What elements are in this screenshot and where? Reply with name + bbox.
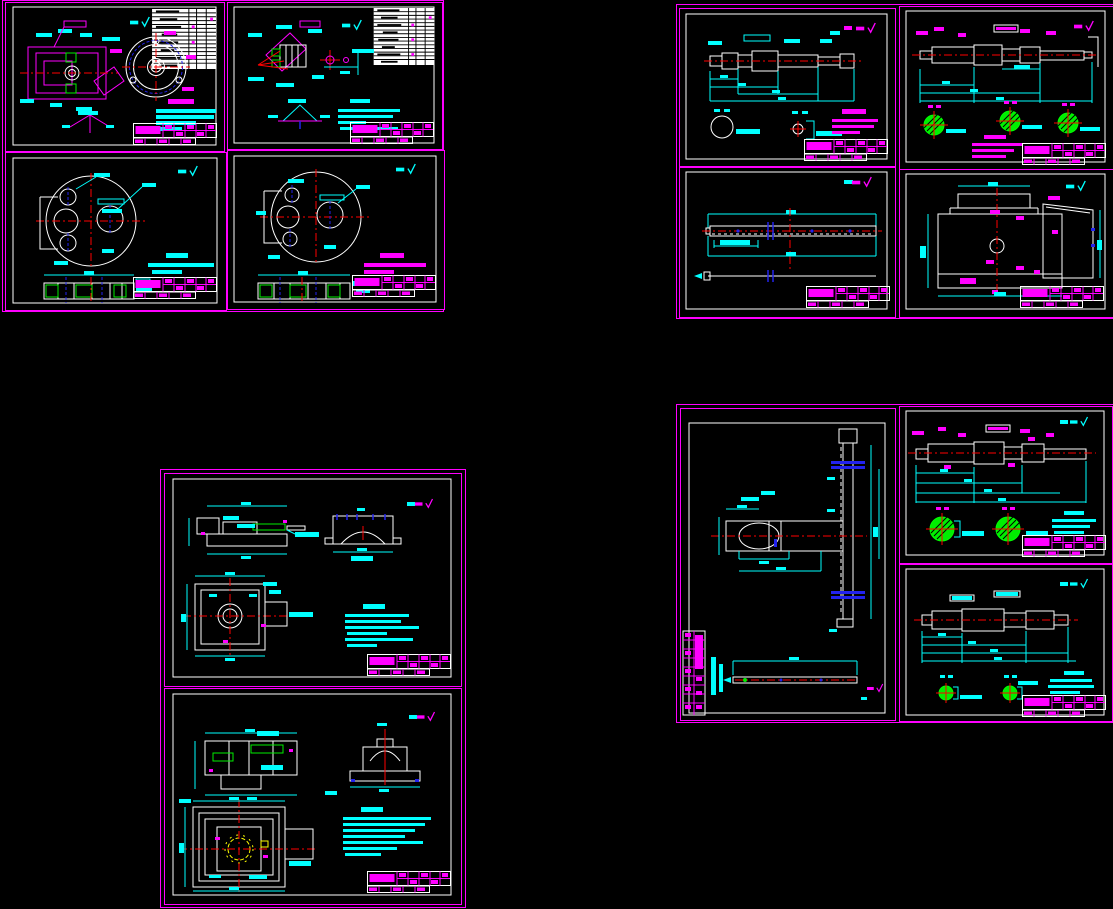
surface-finish-mark [178, 166, 197, 175]
sheet-D3[interactable] [899, 564, 1113, 722]
surface-finish-mark [407, 499, 433, 507]
cad-model-space [0, 0, 1113, 909]
sheet-B3[interactable] [679, 167, 896, 318]
surface-finish-mark [844, 23, 875, 32]
surface-finish-mark [130, 17, 149, 26]
housing-front-view [920, 182, 1062, 296]
technical-notes [364, 253, 426, 274]
sheet-A1[interactable] [5, 2, 225, 152]
housing-section-view [195, 729, 297, 800]
sheet-C2[interactable] [164, 688, 462, 905]
sheet-A4[interactable] [227, 150, 445, 310]
sheet-B2[interactable] [899, 6, 1113, 171]
sheet-A3[interactable] [5, 152, 227, 311]
surface-finish-mark [409, 712, 435, 720]
arm-view [711, 491, 867, 571]
sheet-B1[interactable] [679, 8, 896, 167]
sheet-B4[interactable] [899, 169, 1113, 318]
title-block [807, 287, 890, 308]
cluster-bottom-right [676, 404, 1113, 723]
drilled-plate-view [36, 173, 156, 269]
shaft-main-view [914, 591, 1078, 663]
title-block [134, 124, 217, 145]
shaft-main-view [908, 437, 1096, 503]
technical-notes [972, 135, 1022, 158]
housing-front-view [325, 723, 420, 795]
technical-notes [1048, 671, 1094, 694]
technical-notes [148, 253, 214, 274]
surface-finish-mark [1060, 579, 1088, 587]
green-section-circles [920, 101, 1100, 139]
title-block [368, 655, 451, 676]
shaft-main-view [912, 37, 1098, 103]
parts-list-table [374, 8, 435, 65]
surface-finish-mark [1074, 21, 1093, 30]
bracket-top-view [325, 508, 401, 561]
vertical-rack-view [827, 429, 879, 632]
upper-dimension-labels [912, 425, 1054, 437]
bottom-detail-view [62, 111, 114, 133]
technical-notes [345, 604, 419, 647]
drilled-plate-view [256, 169, 370, 265]
surface-finish-mark [1066, 181, 1085, 190]
rack-bar-top-view [702, 208, 882, 270]
title-block [134, 278, 217, 299]
rack-bar-side-view [694, 270, 876, 282]
sheet-D2[interactable] [899, 406, 1113, 564]
gear-plan-view [179, 797, 315, 893]
sheet-A2[interactable] [227, 2, 443, 150]
housing-side-view [1043, 196, 1102, 278]
title-block [353, 276, 436, 297]
title-block [805, 140, 888, 161]
bracket-plan-view [181, 572, 313, 661]
angled-clamp-view [248, 21, 324, 87]
surface-finish-mark [396, 164, 415, 173]
sheet-C1[interactable] [164, 473, 462, 687]
rack-side-strip-view [723, 657, 883, 700]
upper-dimension-labels [916, 25, 1056, 37]
cone-detail-view [268, 99, 330, 129]
section-detail-hatched [711, 109, 760, 138]
title-block [351, 123, 434, 144]
assembly-front-view [20, 21, 124, 111]
title-block [1023, 696, 1106, 717]
cluster-top-left [2, 0, 444, 312]
technical-notes [343, 807, 431, 856]
title-block [368, 872, 451, 893]
surface-finish-mark [1060, 417, 1088, 425]
shaft-main-view [704, 31, 862, 101]
sheet-D1[interactable] [680, 408, 896, 721]
title-block [1023, 536, 1106, 557]
technical-notes [1052, 511, 1096, 534]
title-block [1023, 144, 1106, 165]
technical-notes [832, 109, 878, 134]
title-block [1021, 287, 1104, 308]
cluster-top-right [676, 4, 1113, 319]
bracket-section-view [189, 502, 319, 559]
surface-finish-mark [342, 20, 361, 29]
cluster-bottom-left [160, 469, 466, 908]
surface-finish-mark [844, 177, 871, 186]
pin-detail-view [320, 49, 374, 75]
